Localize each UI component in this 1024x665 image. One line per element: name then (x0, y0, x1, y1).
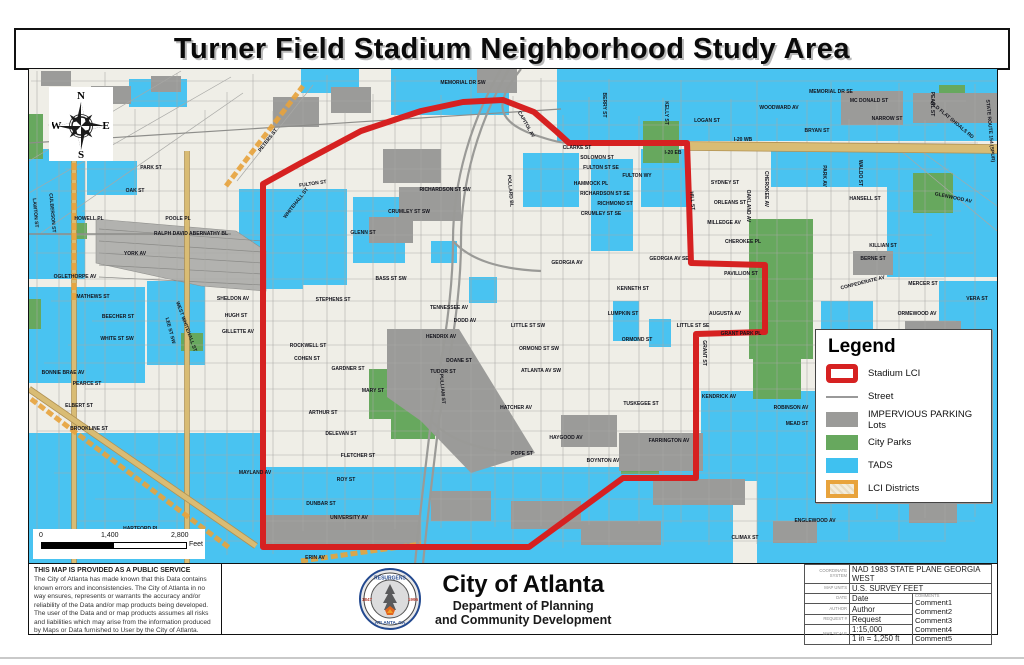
street-label: MEMORIAL DR SW (440, 80, 485, 86)
street-label: KELLY ST (663, 101, 669, 125)
street-label: COHEN ST (294, 356, 320, 362)
street-label: PEARCE ST (73, 381, 102, 387)
street-label: PARK ST (140, 165, 162, 171)
page-title: Turner Field Stadium Neighborhood Study … (174, 33, 850, 66)
street-label: ELBERT ST (65, 403, 93, 409)
svg-text:RESURGENS: RESURGENS (374, 576, 406, 582)
street-label: BOYNTON AV (587, 458, 620, 464)
sw-stadium-swatch (826, 364, 858, 383)
street-label: PEARL ST (929, 92, 935, 117)
legend-item-label: City Parks (868, 437, 911, 448)
svg-text:1847: 1847 (362, 597, 373, 602)
street-label: HATCHER AV (500, 405, 533, 411)
info-value: U.S. SURVEY FEET (850, 584, 992, 594)
info-value: 1:15,0001 in = 1,250 ft (850, 625, 913, 645)
comments-cell: COMMENTSComment1Comment2Comment3Comment4… (913, 594, 992, 645)
street-label: DOANE ST (446, 358, 472, 364)
street-label: TENNESSEE AV (430, 305, 469, 311)
street-label: DODD AV (454, 318, 477, 324)
footer-bar: THIS MAP IS PROVIDED AS A PUBLIC SERVICE… (28, 563, 998, 635)
street-label: BROOKLINE ST (70, 426, 108, 432)
street-label: ARTHUR ST (309, 410, 338, 416)
street-label: ROCKWELL ST (290, 343, 327, 349)
street-label: WOODWARD AV (759, 105, 799, 111)
tads-area (771, 149, 889, 187)
street-label: ERIN AV (305, 555, 325, 561)
street-label: CHEROKEE AV (763, 171, 769, 208)
info-label: COORDINATE SYSTEM (805, 565, 850, 584)
street-label: MC DONALD ST (850, 98, 888, 104)
legend-item-label: Stadium LCI (868, 368, 920, 379)
street-label: WALDO ST (857, 160, 863, 186)
sw-street-swatch (826, 396, 858, 398)
agency-dept-line2: and Community Development (435, 613, 611, 627)
info-value: NAD 1983 STATE PLANE GEORGIA WEST (850, 565, 992, 584)
disclaimer-heading: THIS MAP IS PROVIDED AS A PUBLIC SERVICE (34, 567, 216, 574)
sw-tads-swatch (826, 458, 858, 473)
street-label: BERRY ST (601, 92, 607, 117)
street-label: HANSELL ST (849, 196, 880, 202)
agency-dept-line1: Department of Planning (435, 599, 611, 613)
street-label: LITTLE ST SW (511, 323, 545, 329)
sw-parks-swatch (826, 435, 858, 450)
info-label: DATE (805, 594, 850, 604)
street-label: UNIVERSITY AV (330, 515, 368, 521)
city-park-area (29, 299, 41, 329)
street-label: SYDNEY ST (711, 180, 739, 186)
street-label: OAKLAND AV (745, 190, 751, 223)
street-label: TUSKEGEE ST (623, 401, 658, 407)
street-label: ENGLEWOOD AV (794, 518, 836, 524)
street-label: LOGAN ST (694, 118, 720, 124)
street-label: OAK ST (126, 188, 145, 194)
info-label: REQUEST # (805, 614, 850, 624)
info-value: Author (850, 604, 913, 614)
street-label: CRUMLEY ST SE (581, 211, 622, 217)
svg-text:1996: 1996 (408, 597, 419, 602)
info-label: MAP SCALE (805, 625, 850, 645)
street-label: LUMPKIN ST (608, 311, 639, 317)
street-label: ROY ST (337, 477, 356, 483)
arterial-road (687, 146, 997, 149)
parking-lot-area (383, 149, 441, 183)
street-label: LITTLE ST SE (677, 323, 710, 329)
tads-area (649, 319, 671, 347)
scale-bar: 0 1,400 2,800 Feet (33, 529, 205, 559)
parking-lot-area (331, 87, 371, 113)
map-canvas: MEMORIAL DR SWMEMORIAL DR SEMC DONALD ST… (28, 68, 998, 565)
street-label: RALPH DAVID ABERNATHY BL (154, 231, 228, 237)
street-label: HAYGOOD AV (549, 435, 583, 441)
street-label: HENDRIX AV (426, 334, 457, 340)
street-label: PARK AV (821, 165, 827, 187)
street-label: STEPHENS ST (316, 297, 351, 303)
street-label: MATHEWS ST (76, 294, 109, 300)
info-value: Date (850, 594, 913, 604)
legend-item: IMPERVIOUS PARKING Lots (826, 408, 991, 431)
street-label: OGLETHORPE AV (54, 274, 97, 280)
street-label: RICHMOND ST (597, 201, 632, 207)
scale-bar-track (41, 542, 187, 549)
street-label: PAVILLION ST (724, 271, 758, 277)
street-label: DUNBAR ST (306, 501, 335, 507)
street-label: ORMOND ST (622, 337, 653, 343)
street-label: MILLEDGE AV (707, 220, 741, 226)
compass-rose-icon: N S W E (52, 89, 110, 159)
parking-lot-area (773, 521, 817, 543)
street-label: HAMMOCK PL (574, 181, 608, 187)
street-label: CLIMAX ST (732, 535, 759, 541)
legend-item: City Parks (826, 431, 991, 454)
svg-text:ATLANTA, GA: ATLANTA, GA (375, 620, 406, 625)
street-label: MARY ST (362, 388, 384, 394)
parking-lot-area (431, 491, 491, 521)
street-label: GEORGIA AV SE (649, 256, 689, 262)
street-label: KENNETH ST (617, 286, 649, 292)
street-label: HOWELL PL (74, 216, 103, 222)
sw-parking-swatch (826, 412, 858, 427)
street-label: ORLEANS ST (714, 200, 746, 206)
street-label: GRANT ST (701, 340, 707, 366)
street-label: BERNE ST (860, 256, 885, 262)
street-label: GILLETTE AV (222, 329, 255, 335)
street-label: NARROW ST (872, 116, 903, 122)
compass-rose: N S W E (49, 87, 113, 161)
tads-area (469, 277, 497, 303)
parking-lot-area (151, 76, 181, 92)
street-label: BRYAN ST (805, 128, 830, 134)
street-label: I-20 EB (665, 150, 682, 156)
street-label: AUGUSTA AV (709, 311, 742, 317)
street-label: MERCER ST (908, 281, 937, 287)
street-label: DELEVAN ST (325, 431, 356, 437)
street-label: HUGH ST (225, 313, 248, 319)
street-label: WHITE ST SW (100, 336, 134, 342)
legend-title: Legend (828, 336, 991, 358)
svg-text:S: S (78, 149, 84, 159)
scale-bar-fill (42, 543, 114, 548)
map-sheet: Turner Field Stadium Neighborhood Study … (0, 0, 1024, 665)
page-edge-line (0, 657, 1024, 659)
street-label: SOLOMON ST (580, 155, 614, 161)
legend-item: LCI Districts (826, 477, 991, 500)
map-info-table: COORDINATE SYSTEMNAD 1983 STATE PLANE GE… (804, 564, 992, 645)
info-label: MAP UNITS (805, 584, 850, 594)
legend-item-label: TADS (868, 460, 893, 471)
scale-tick-2800: 2,800 (171, 532, 189, 539)
street-label: VERA ST (966, 296, 987, 302)
svg-text:N: N (77, 90, 85, 102)
street-label: FLETCHER ST (341, 453, 375, 459)
parking-lot-area (909, 501, 957, 523)
street-label: FULTON ST SE (583, 165, 619, 171)
scale-tick-1400: 1,400 (101, 532, 119, 539)
street-label: GEORGIA AV (551, 260, 583, 266)
street-label: POPE ST (511, 451, 533, 457)
street-label: ATLANTA AV SW (521, 368, 561, 374)
street-label: CLARKE ST (563, 145, 592, 151)
tads-area (29, 287, 145, 383)
street-label: RICHARDSON ST SW (419, 187, 470, 193)
disclaimer-text: The City of Atlanta has made known that … (34, 576, 216, 634)
street-label: GARDNER ST (331, 366, 364, 372)
disclaimer-box: THIS MAP IS PROVIDED AS A PUBLIC SERVICE… (29, 564, 222, 634)
parking-lot-area (581, 521, 661, 545)
legend-item-label: Street (868, 391, 893, 402)
street-label: CHEROKEE PL (725, 239, 761, 245)
legend-item: Stadium LCI (826, 362, 991, 385)
street-label: BONNIE BRAE AV (42, 370, 85, 376)
info-label: AUTHOR (805, 604, 850, 614)
street-label: RICHARDSON ST SE (580, 191, 630, 197)
street-label: KENDRICK AV (702, 394, 737, 400)
sw-lci-swatch (826, 480, 858, 498)
street-label: ORMEWOOD AV (898, 311, 938, 317)
tads-area (147, 281, 205, 365)
street-label: ORMOND ST SW (519, 346, 559, 352)
legend-item: Street (826, 385, 991, 408)
legend-item: TADS (826, 454, 991, 477)
agency-block: RESURGENS ATLANTA, GA 1847 1996 City of … (359, 564, 779, 634)
scale-unit-label: Feet (189, 541, 203, 548)
tads-area (523, 153, 579, 207)
parking-lot-area (853, 251, 893, 275)
street-label: MEAD ST (786, 421, 809, 427)
street-label: KILLIAN ST (869, 243, 897, 249)
street-label: MEMORIAL DR SE (809, 89, 853, 95)
parking-lot-area (41, 71, 71, 86)
agency-name: City of Atlanta (435, 571, 611, 599)
info-value: Request (850, 614, 913, 624)
street-label: BASS ST SW (375, 276, 406, 282)
street-label: CRUMLEY ST SW (388, 209, 430, 215)
street-label: GLENN ST (350, 230, 375, 236)
street-label: POOLE PL (165, 216, 190, 222)
street-label: GRANT PARK PL (721, 331, 762, 337)
title-bar: Turner Field Stadium Neighborhood Study … (14, 28, 1010, 70)
street-label: MAYLAND AV (239, 470, 272, 476)
street-label: FULTON WY (622, 173, 652, 179)
city-park-area (29, 114, 43, 159)
legend-item-label: IMPERVIOUS PARKING Lots (868, 409, 991, 431)
street-label: SHELDON AV (217, 296, 250, 302)
city-seal-icon: RESURGENS ATLANTA, GA 1847 1996 (359, 568, 421, 630)
legend-item-label: LCI Districts (868, 483, 919, 494)
street-label: YORK AV (124, 251, 147, 257)
legend-box: Legend Stadium LCIStreetIMPERVIOUS PARKI… (815, 329, 992, 503)
street-label: I-20 WB (734, 137, 753, 143)
scale-tick-0: 0 (39, 532, 43, 539)
street-label: FARRINGTON AV (649, 438, 690, 444)
street-label: BEECHER ST (102, 314, 134, 320)
street-label: ROBINSON AV (774, 405, 809, 411)
